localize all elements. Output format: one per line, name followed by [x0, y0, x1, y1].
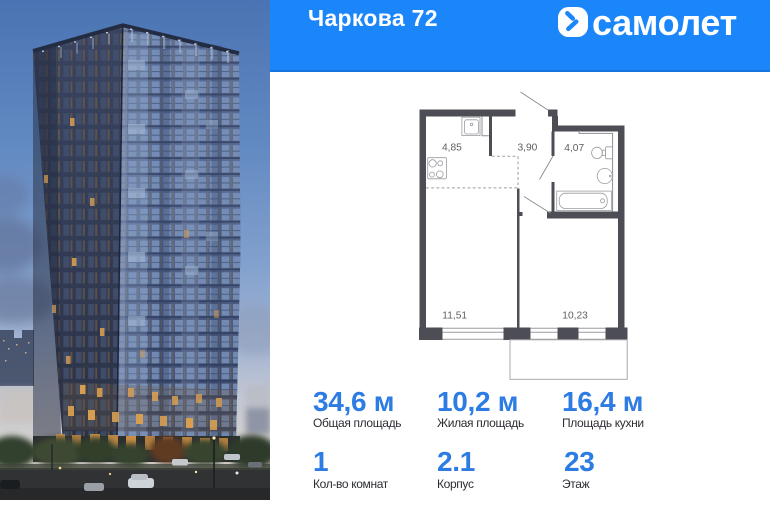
svg-text:4,07: 4,07: [564, 143, 584, 154]
svg-text:10,23: 10,23: [562, 311, 588, 322]
svg-text:3,90: 3,90: [518, 142, 538, 153]
svg-text:4,85: 4,85: [442, 143, 462, 154]
svg-text:11,51: 11,51: [442, 311, 467, 322]
